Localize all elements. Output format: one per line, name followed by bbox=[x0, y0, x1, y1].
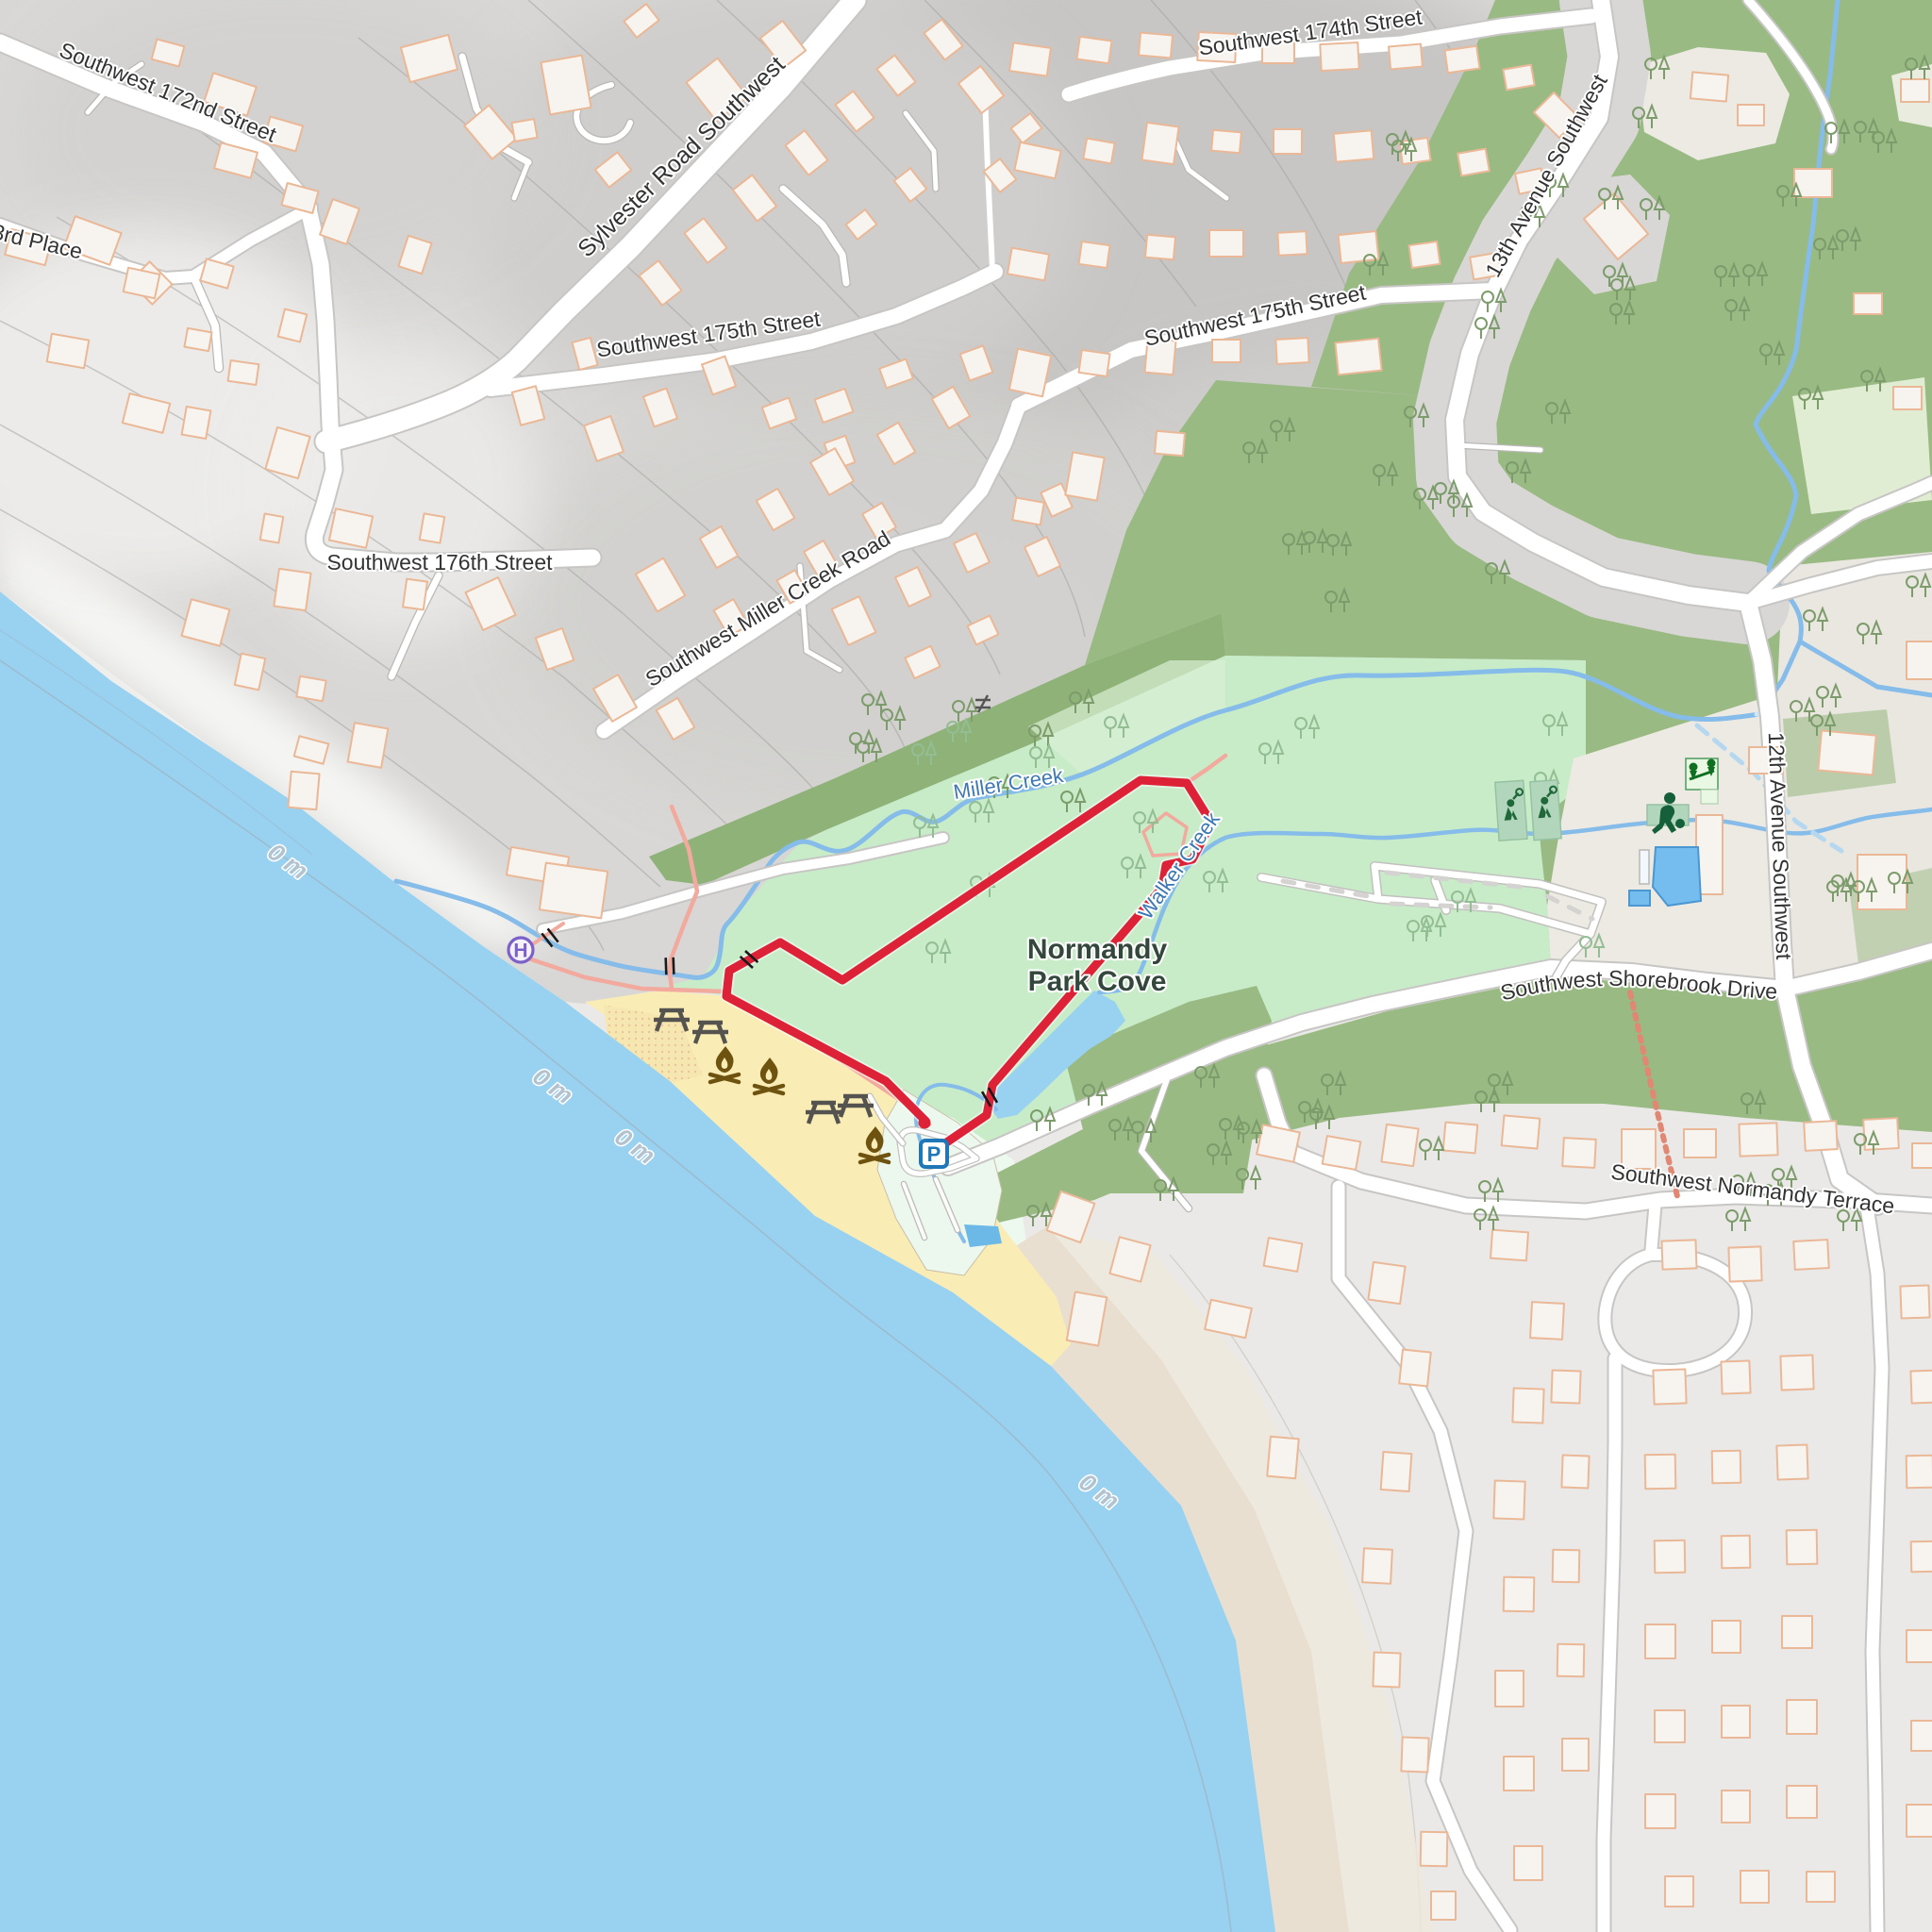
svg-text:Normandy: Normandy bbox=[1027, 934, 1168, 965]
svg-text:Park Cove: Park Cove bbox=[1028, 966, 1167, 997]
svg-text:P: P bbox=[927, 1142, 941, 1166]
svg-text:Southwest 176th Street: Southwest 176th Street bbox=[326, 550, 553, 575]
svg-text:H: H bbox=[513, 941, 527, 962]
